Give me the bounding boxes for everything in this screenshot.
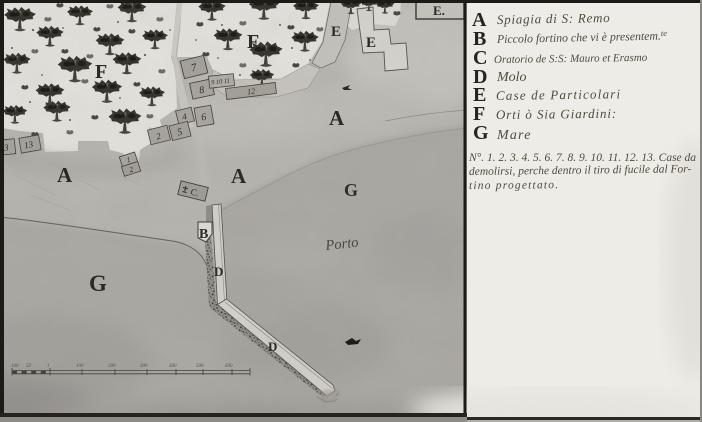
- svg-text:N°. 1. 2. 3. 4. 5. 6. 7. 8. 9.: N°. 1. 2. 3. 4. 5. 6. 7. 8. 9. 10. 11. 1…: [468, 152, 696, 164]
- svg-text:Molo: Molo: [496, 70, 527, 85]
- svg-text:Case de Particolari: Case de Particolari: [496, 86, 622, 103]
- svg-text:G: G: [473, 122, 489, 144]
- svg-text:Spiagia di S: Remo: Spiagia di S: Remo: [497, 10, 611, 27]
- svg-text:Mare: Mare: [496, 128, 532, 143]
- svg-text:Oratorio de S:S: Mauro et Eras: Oratorio de S:S: Mauro et Erasmo: [494, 52, 648, 66]
- svg-text:Orti ò Sia Giardini:: Orti ò Sia Giardini:: [496, 106, 617, 122]
- svg-text:tino progettato.: tino progettato.: [469, 179, 559, 192]
